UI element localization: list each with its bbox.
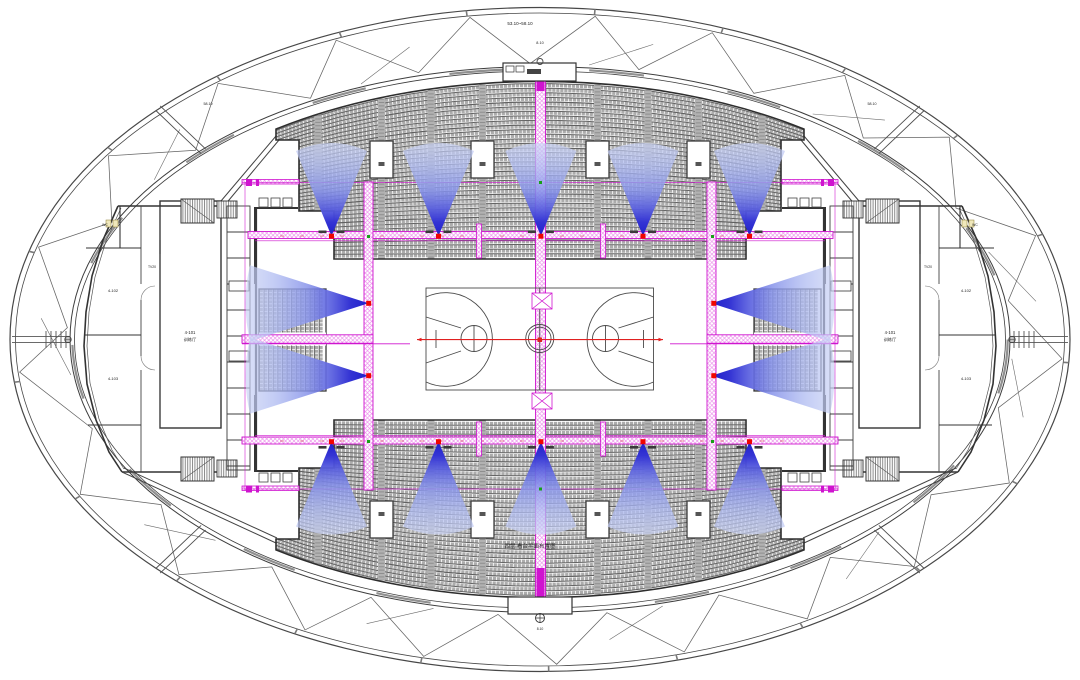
svg-text:53.10~58.10: 53.10~58.10 (507, 21, 533, 26)
svg-text:TV20: TV20 (148, 265, 156, 269)
svg-text:8.10: 8.10 (537, 627, 544, 631)
svg-text:4-103: 4-103 (961, 376, 972, 381)
svg-text:训练厅: 训练厅 (184, 336, 197, 343)
svg-text:训练厅: 训练厅 (884, 336, 897, 343)
svg-text:58.10: 58.10 (868, 102, 877, 106)
svg-text:WC: WC (972, 223, 978, 227)
svg-text:58.10: 58.10 (204, 102, 213, 106)
svg-text:四层 看台平面布置图: 四层 看台平面布置图 (504, 542, 556, 550)
svg-text:TV20: TV20 (924, 265, 932, 269)
svg-text:4-101: 4-101 (885, 330, 896, 335)
svg-text:4-102: 4-102 (108, 288, 119, 293)
svg-text:8.10: 8.10 (536, 41, 543, 45)
svg-text:4-102: 4-102 (961, 288, 972, 293)
svg-text:4-103: 4-103 (108, 376, 119, 381)
svg-text:WC: WC (102, 223, 108, 227)
svg-text:4-101: 4-101 (185, 330, 196, 335)
